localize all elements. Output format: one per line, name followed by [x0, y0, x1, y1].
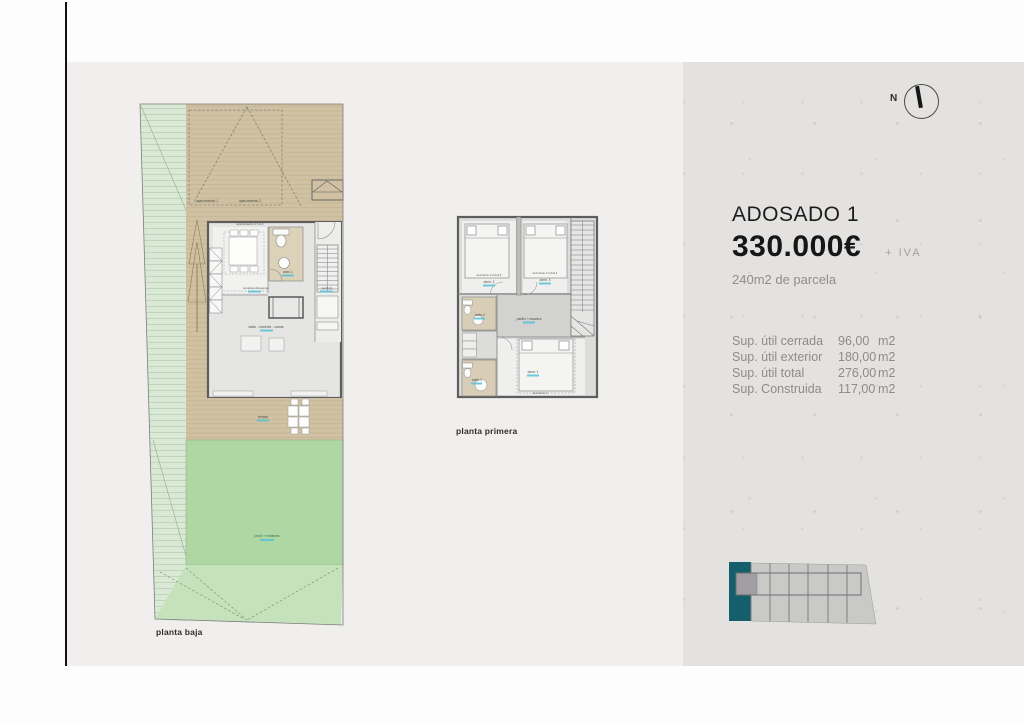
dorm3-label: dorm. 3	[540, 278, 551, 282]
area-label: Sup. útil exterior	[732, 349, 838, 365]
area-value: 96,00	[838, 333, 878, 349]
area-unit: m2	[878, 365, 902, 381]
area-value-mark	[282, 275, 294, 277]
stairs-first	[571, 221, 594, 336]
jardin-label: jardín + entrantes	[254, 534, 280, 538]
area-label: Sup. útil cerrada	[732, 333, 838, 349]
area-table: Sup. útil cerrada 96,00 m2 Sup. útil ext…	[732, 333, 902, 397]
area-row: Sup. Construida 117,00 m2	[732, 381, 902, 397]
parcel-size: 240m2 de parcela	[732, 272, 836, 287]
vestibulo-label: vestíbulo	[321, 286, 333, 290]
compass-label: N	[890, 93, 897, 104]
dorm1-label: dorm. 1	[528, 370, 539, 374]
area-value: 117,00	[838, 381, 878, 397]
area-value-mark	[539, 283, 551, 285]
parcel-slope-area	[155, 565, 343, 625]
pasillo-label: pasillo + escalera	[517, 317, 542, 321]
parking2-label: aparcamiento 2	[239, 199, 261, 203]
dorm1-dim-label: dormitorio 1	[533, 391, 548, 395]
page: aparcamiento 1 aparcamiento 2	[0, 0, 1024, 724]
area-value-mark	[523, 322, 535, 324]
area-value-mark	[260, 330, 273, 332]
terrace: terraza	[186, 398, 343, 440]
dorm2-dim-label: dormitorio 2 2,6x2,5	[477, 273, 502, 277]
parking1-label: aparcamiento 1	[196, 199, 218, 203]
unit-price: 330.000€	[732, 230, 861, 264]
bed-icon	[524, 224, 567, 278]
site-plan-inner-highlight	[736, 573, 757, 595]
bed-icon	[517, 337, 575, 393]
page-edge-line	[65, 2, 67, 666]
area-label: Sup. Construida	[732, 381, 838, 397]
area-value: 276,00	[838, 365, 878, 381]
area-row: Sup. útil exterior 180,00 m2	[732, 349, 902, 365]
garden: jardín + entrantes	[186, 440, 343, 565]
dorm2-label: dorm. 2	[484, 280, 495, 284]
salon-label: salón - comedor - cocina	[249, 325, 284, 329]
pergola-structure	[312, 180, 343, 200]
closets	[210, 248, 223, 313]
kitchen-counter	[269, 297, 303, 318]
parking-dim-label: aparcamiento 4,7x2,4	[237, 222, 264, 226]
bano2-label: baño 2	[475, 313, 485, 317]
area-value-mark	[320, 291, 333, 293]
price-tax-note: + IVA	[885, 247, 921, 259]
ground-floor-caption: planta baja	[156, 627, 203, 637]
area-value-mark	[260, 539, 274, 541]
area-value-mark	[474, 318, 485, 320]
tendedero-label: tendedero/despensa	[243, 286, 269, 290]
area-value-mark	[248, 291, 261, 293]
bed-icon	[465, 224, 509, 278]
area-unit: m2	[878, 381, 902, 397]
area-unit: m2	[878, 349, 902, 365]
first-floor-plan: dormitorio 2 2,6x2,5 dormitorio 3 2,6x2,…	[448, 208, 605, 412]
price-row: 330.000€ + IVA	[732, 230, 922, 264]
spec-panel: N ADOSADO 1 330.000€ + IVA 240m2 de parc…	[683, 62, 1024, 666]
terraza-label: terraza	[258, 415, 268, 419]
shelving	[463, 333, 477, 357]
aseo-label: aseo 1	[283, 270, 293, 274]
area-value-mark	[483, 285, 495, 287]
building-ground	[208, 222, 341, 398]
unit-title: ADOSADO 1	[732, 203, 859, 227]
bano1-label: baño 1	[472, 378, 482, 382]
first-floor-caption: planta primera	[456, 426, 517, 436]
area-row: Sup. útil total 276,00 m2	[732, 365, 902, 381]
garden-side-strip	[140, 104, 186, 622]
area-unit: m2	[878, 333, 902, 349]
area-value-mark	[471, 383, 482, 385]
area-label: Sup. útil total	[732, 365, 838, 381]
area-value-mark	[257, 420, 269, 422]
dorm3-dim-label: dormitorio 3 2,6x2,4	[533, 271, 558, 275]
area-value: 180,00	[838, 349, 878, 365]
area-row: Sup. útil cerrada 96,00 m2	[732, 333, 902, 349]
area-value-mark	[527, 375, 539, 377]
site-key-plan	[720, 554, 882, 630]
ground-floor-plan: aparcamiento 1 aparcamiento 2	[136, 98, 348, 634]
